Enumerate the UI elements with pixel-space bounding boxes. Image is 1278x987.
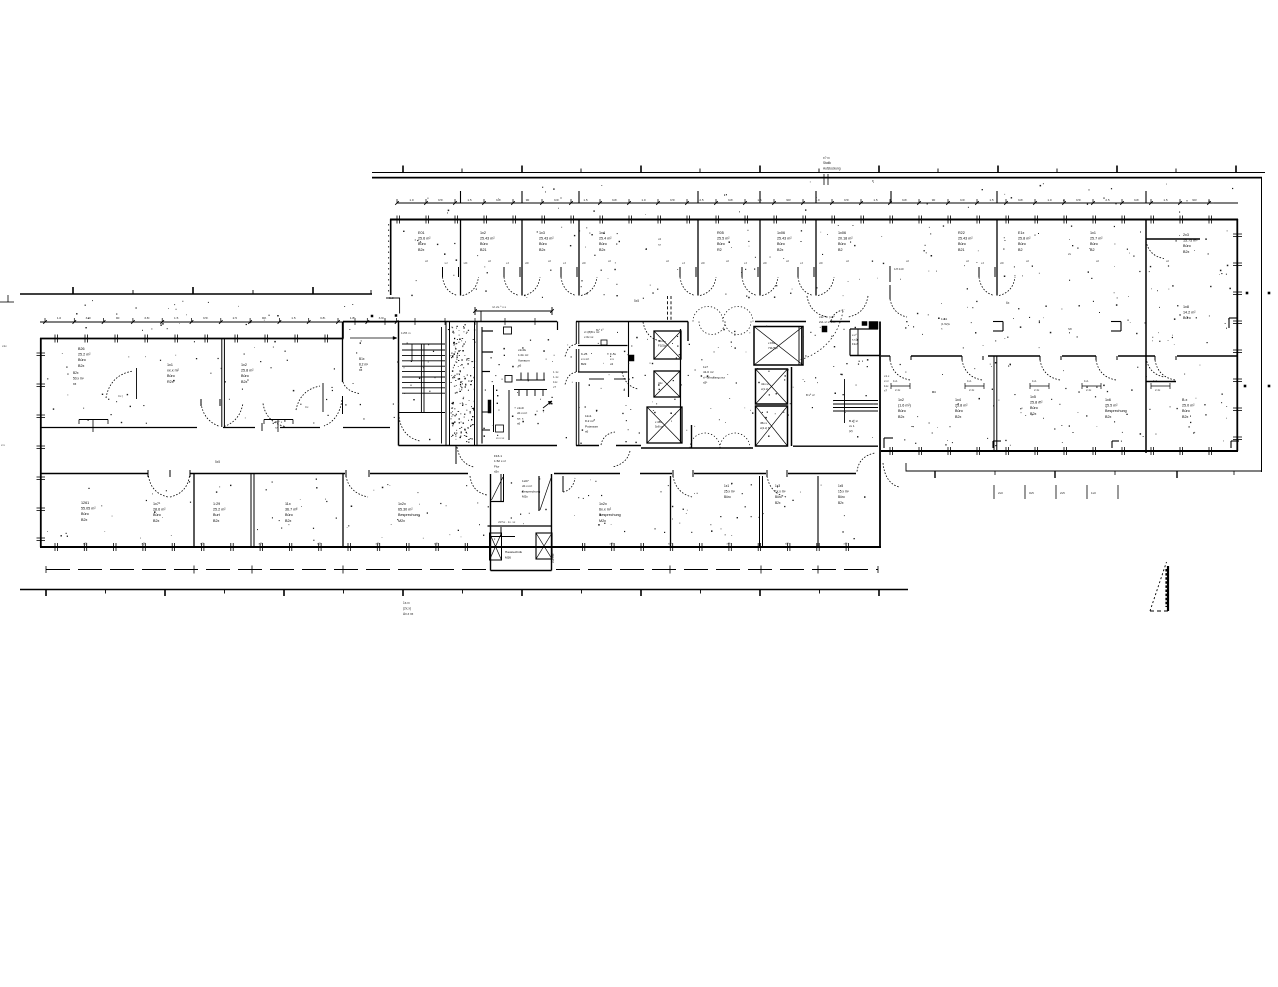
svg-text:2x: 2x xyxy=(1068,252,1072,256)
svg-text:1x1: 1x1 xyxy=(967,379,972,383)
svg-text:1.0: 1.0 xyxy=(409,198,414,202)
svg-text:3.5¹: 3.5¹ xyxy=(86,316,91,320)
svg-text:x2: x2 xyxy=(1096,259,1099,263)
svg-text:x0¹: x0¹ xyxy=(701,261,705,265)
svg-text:5x5: 5x5 xyxy=(215,460,220,464)
svg-text:x2: x2 xyxy=(425,259,428,263)
svg-text:x2: x2 xyxy=(666,259,669,263)
svg-text:x2: x2 xyxy=(966,259,969,263)
svg-text:2.5: 2.5 xyxy=(233,316,238,320)
svg-text:1x55 m: 1x55 m xyxy=(401,331,411,335)
svg-text:3.8¹: 3.8¹ xyxy=(144,316,149,320)
svg-text:3.5¹: 3.5¹ xyxy=(844,198,849,202)
svg-text:x:x: x:x xyxy=(1,443,5,447)
svg-text:1x1: 1x1 xyxy=(893,379,898,383)
svg-text:x0¹: x0¹ xyxy=(668,542,672,546)
svg-text:3.6¹: 3.6¹ xyxy=(960,198,965,202)
svg-text:x0¹: x0¹ xyxy=(844,542,848,546)
svg-text:1.5: 1.5 xyxy=(467,198,472,202)
svg-text:1/8 2x0¹: 1/8 2x0¹ xyxy=(894,267,904,271)
svg-text:0x5: 0x5 xyxy=(1029,491,1034,495)
svg-text:xxx.xxx: xxx.xxx xyxy=(551,553,555,563)
svg-text:2.4x: 2.4x xyxy=(895,388,901,392)
svg-text:3.5¹: 3.5¹ xyxy=(438,198,443,202)
svg-text:xx x xx: xx x xx xyxy=(496,437,505,440)
svg-text:x2: x2 xyxy=(906,259,909,263)
svg-text:3.8¹: 3.8¹ xyxy=(1018,198,1023,202)
svg-text:3.5¹: 3.5¹ xyxy=(1076,198,1081,202)
svg-text:1.5: 1.5 xyxy=(1163,198,1168,202)
svg-text:x0¹: x0¹ xyxy=(142,542,146,546)
svg-text:90: 90 xyxy=(932,198,936,202)
svg-text:x0¹: x0¹ xyxy=(582,261,586,265)
svg-text:1.5: 1.5 xyxy=(989,198,994,202)
svg-text:90: 90 xyxy=(116,316,120,320)
svg-text:90²: 90² xyxy=(1192,198,1196,202)
svg-text:1.0: 1.0 xyxy=(1047,198,1052,202)
svg-text:5x2: 5x2 xyxy=(389,296,394,300)
svg-text:3.8¹: 3.8¹ xyxy=(612,198,617,202)
svg-text:x1x: x1x xyxy=(2,344,7,348)
svg-text:x0¹: x0¹ xyxy=(83,542,87,546)
svg-text:8 x⁸ x²: 8 x⁸ x² xyxy=(806,393,815,397)
svg-text:5x5: 5x5 xyxy=(634,299,639,303)
svg-text:3.8¹: 3.8¹ xyxy=(1134,198,1139,202)
svg-text:x0¹: x0¹ xyxy=(464,261,468,265)
svg-text:1.5: 1.5 xyxy=(873,198,878,202)
svg-text:2.4x: 2.4x xyxy=(1155,388,1161,392)
svg-text:2.5: 2.5 xyxy=(1105,198,1110,202)
svg-text:Cx: Cx xyxy=(305,405,309,409)
svg-text:x0¹: x0¹ xyxy=(525,261,529,265)
svg-text:2.4x: 2.4x xyxy=(1034,388,1040,392)
svg-text:3.5¹: 3.5¹ xyxy=(670,198,675,202)
svg-text:1.5: 1.5 xyxy=(291,316,296,320)
svg-text:3.6¹: 3.6¹ xyxy=(554,198,559,202)
svg-text:x2: x2 xyxy=(1166,259,1169,263)
svg-text:3.8¹: 3.8¹ xyxy=(728,198,733,202)
svg-text:x0¹: x0¹ xyxy=(785,542,789,546)
svg-text:x2: x2 xyxy=(726,259,729,263)
svg-text:x0¹: x0¹ xyxy=(763,261,767,265)
svg-text:x9?xx · 1x ·xx: x9?xx · 1x ·xx xyxy=(498,520,516,524)
svg-text:2x0: 2x0 xyxy=(998,491,1003,495)
svg-text:x0¹: x0¹ xyxy=(317,542,321,546)
svg-text:¹x¹ 2x·⁵ x·x: ¹x¹ 2x·⁵ x·x xyxy=(492,305,507,309)
svg-text:3.8¹: 3.8¹ xyxy=(902,198,907,202)
svg-text:1x1: 1x1 xyxy=(1084,379,1089,383)
svg-text:x0¹: x0¹ xyxy=(259,542,263,546)
svg-text:Cx |: Cx | xyxy=(118,394,123,398)
svg-text:3.6¹: 3.6¹ xyxy=(379,316,384,320)
svg-text:1x1: 1x1 xyxy=(1032,379,1037,383)
svg-text:90: 90 xyxy=(526,198,530,202)
svg-text:90²: 90² xyxy=(786,198,790,202)
svg-text:41x.x²x(1.x): 41x.x²x(1.x) xyxy=(761,382,769,391)
svg-text:x2xx: x2xx xyxy=(658,237,662,247)
svg-text:2.5: 2.5 xyxy=(699,198,704,202)
svg-text:x1x⁴ x¹ | x9⁴2x1.x² x³ x.x¹: x1x⁴ x¹ | x9⁴2x1.x² x³ x.x¹ xyxy=(819,315,836,324)
svg-text:2.4x: 2.4x xyxy=(969,388,975,392)
svg-text:x2: x2 xyxy=(786,259,789,263)
svg-text:x0¹: x0¹ xyxy=(1000,261,1004,265)
svg-text:1x0: 1x0 xyxy=(1091,491,1096,495)
svg-text:2.4x: 2.4x xyxy=(1086,388,1092,392)
svg-text:3.8¹: 3.8¹ xyxy=(320,316,325,320)
svg-text:1.5: 1.5 xyxy=(174,316,179,320)
svg-text:1.5: 1.5 xyxy=(583,198,588,202)
svg-text:6x: 6x xyxy=(1006,301,1010,305)
svg-text:1.0: 1.0 xyxy=(57,316,62,320)
svg-text:x2: x2 xyxy=(1026,259,1029,263)
svg-text:x2: x2 xyxy=(846,259,849,263)
svg-text:2x5: 2x5 xyxy=(1060,491,1065,495)
svg-text:90¹: 90¹ xyxy=(262,316,266,320)
svg-text:x2: x2 xyxy=(548,259,551,263)
svg-text:S8: S8 xyxy=(1068,327,1072,331)
svg-text:x2: x2 xyxy=(608,259,611,263)
svg-text:x0¹: x0¹ xyxy=(200,542,204,546)
svg-text:3.5¹: 3.5¹ xyxy=(203,316,208,320)
svg-text:3.8¹: 3.8¹ xyxy=(496,198,501,202)
svg-text:x2: x2 xyxy=(488,259,491,263)
svg-text:x0¹: x0¹ xyxy=(376,542,380,546)
svg-text:x0¹: x0¹ xyxy=(610,542,614,546)
svg-text:x0¹: x0¹ xyxy=(727,542,731,546)
svg-text:1.0: 1.0 xyxy=(641,198,646,202)
svg-text:x0¹: x0¹ xyxy=(819,261,823,265)
svg-text:x0¹: x0¹ xyxy=(434,542,438,546)
